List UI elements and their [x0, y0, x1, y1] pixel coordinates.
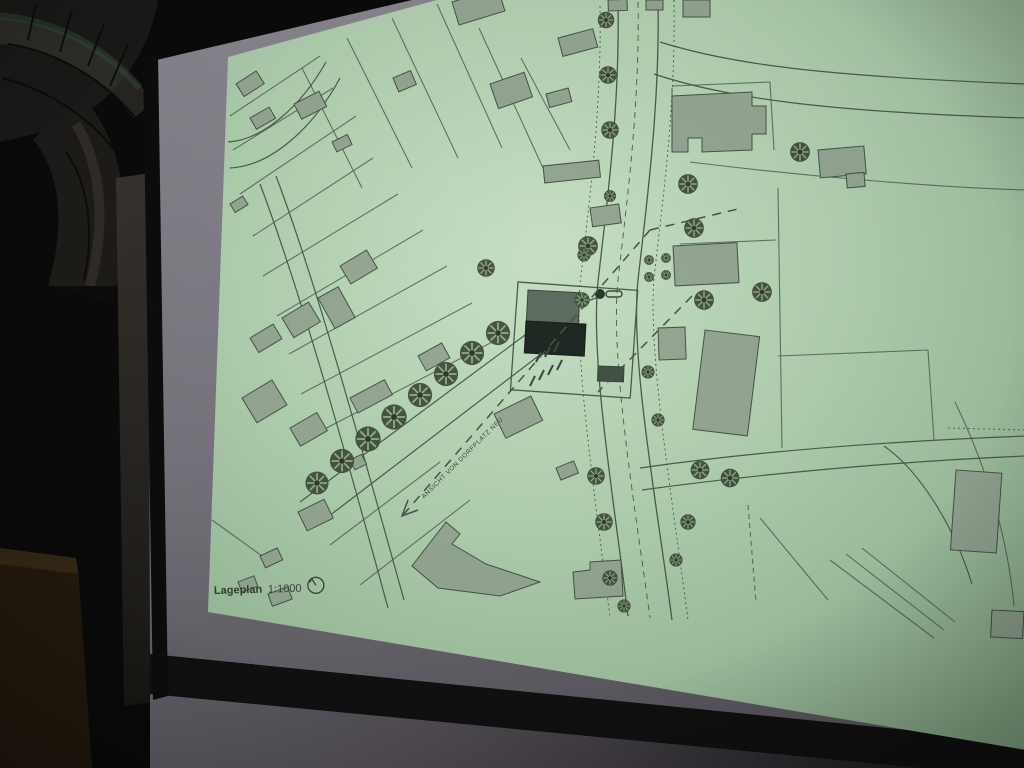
- photo-of-projection: ANSICHT VON DORFPLATZ NEU: [0, 0, 1024, 768]
- photo-vignette: [0, 0, 1024, 768]
- scene-canvas: ANSICHT VON DORFPLATZ NEU: [0, 0, 1024, 768]
